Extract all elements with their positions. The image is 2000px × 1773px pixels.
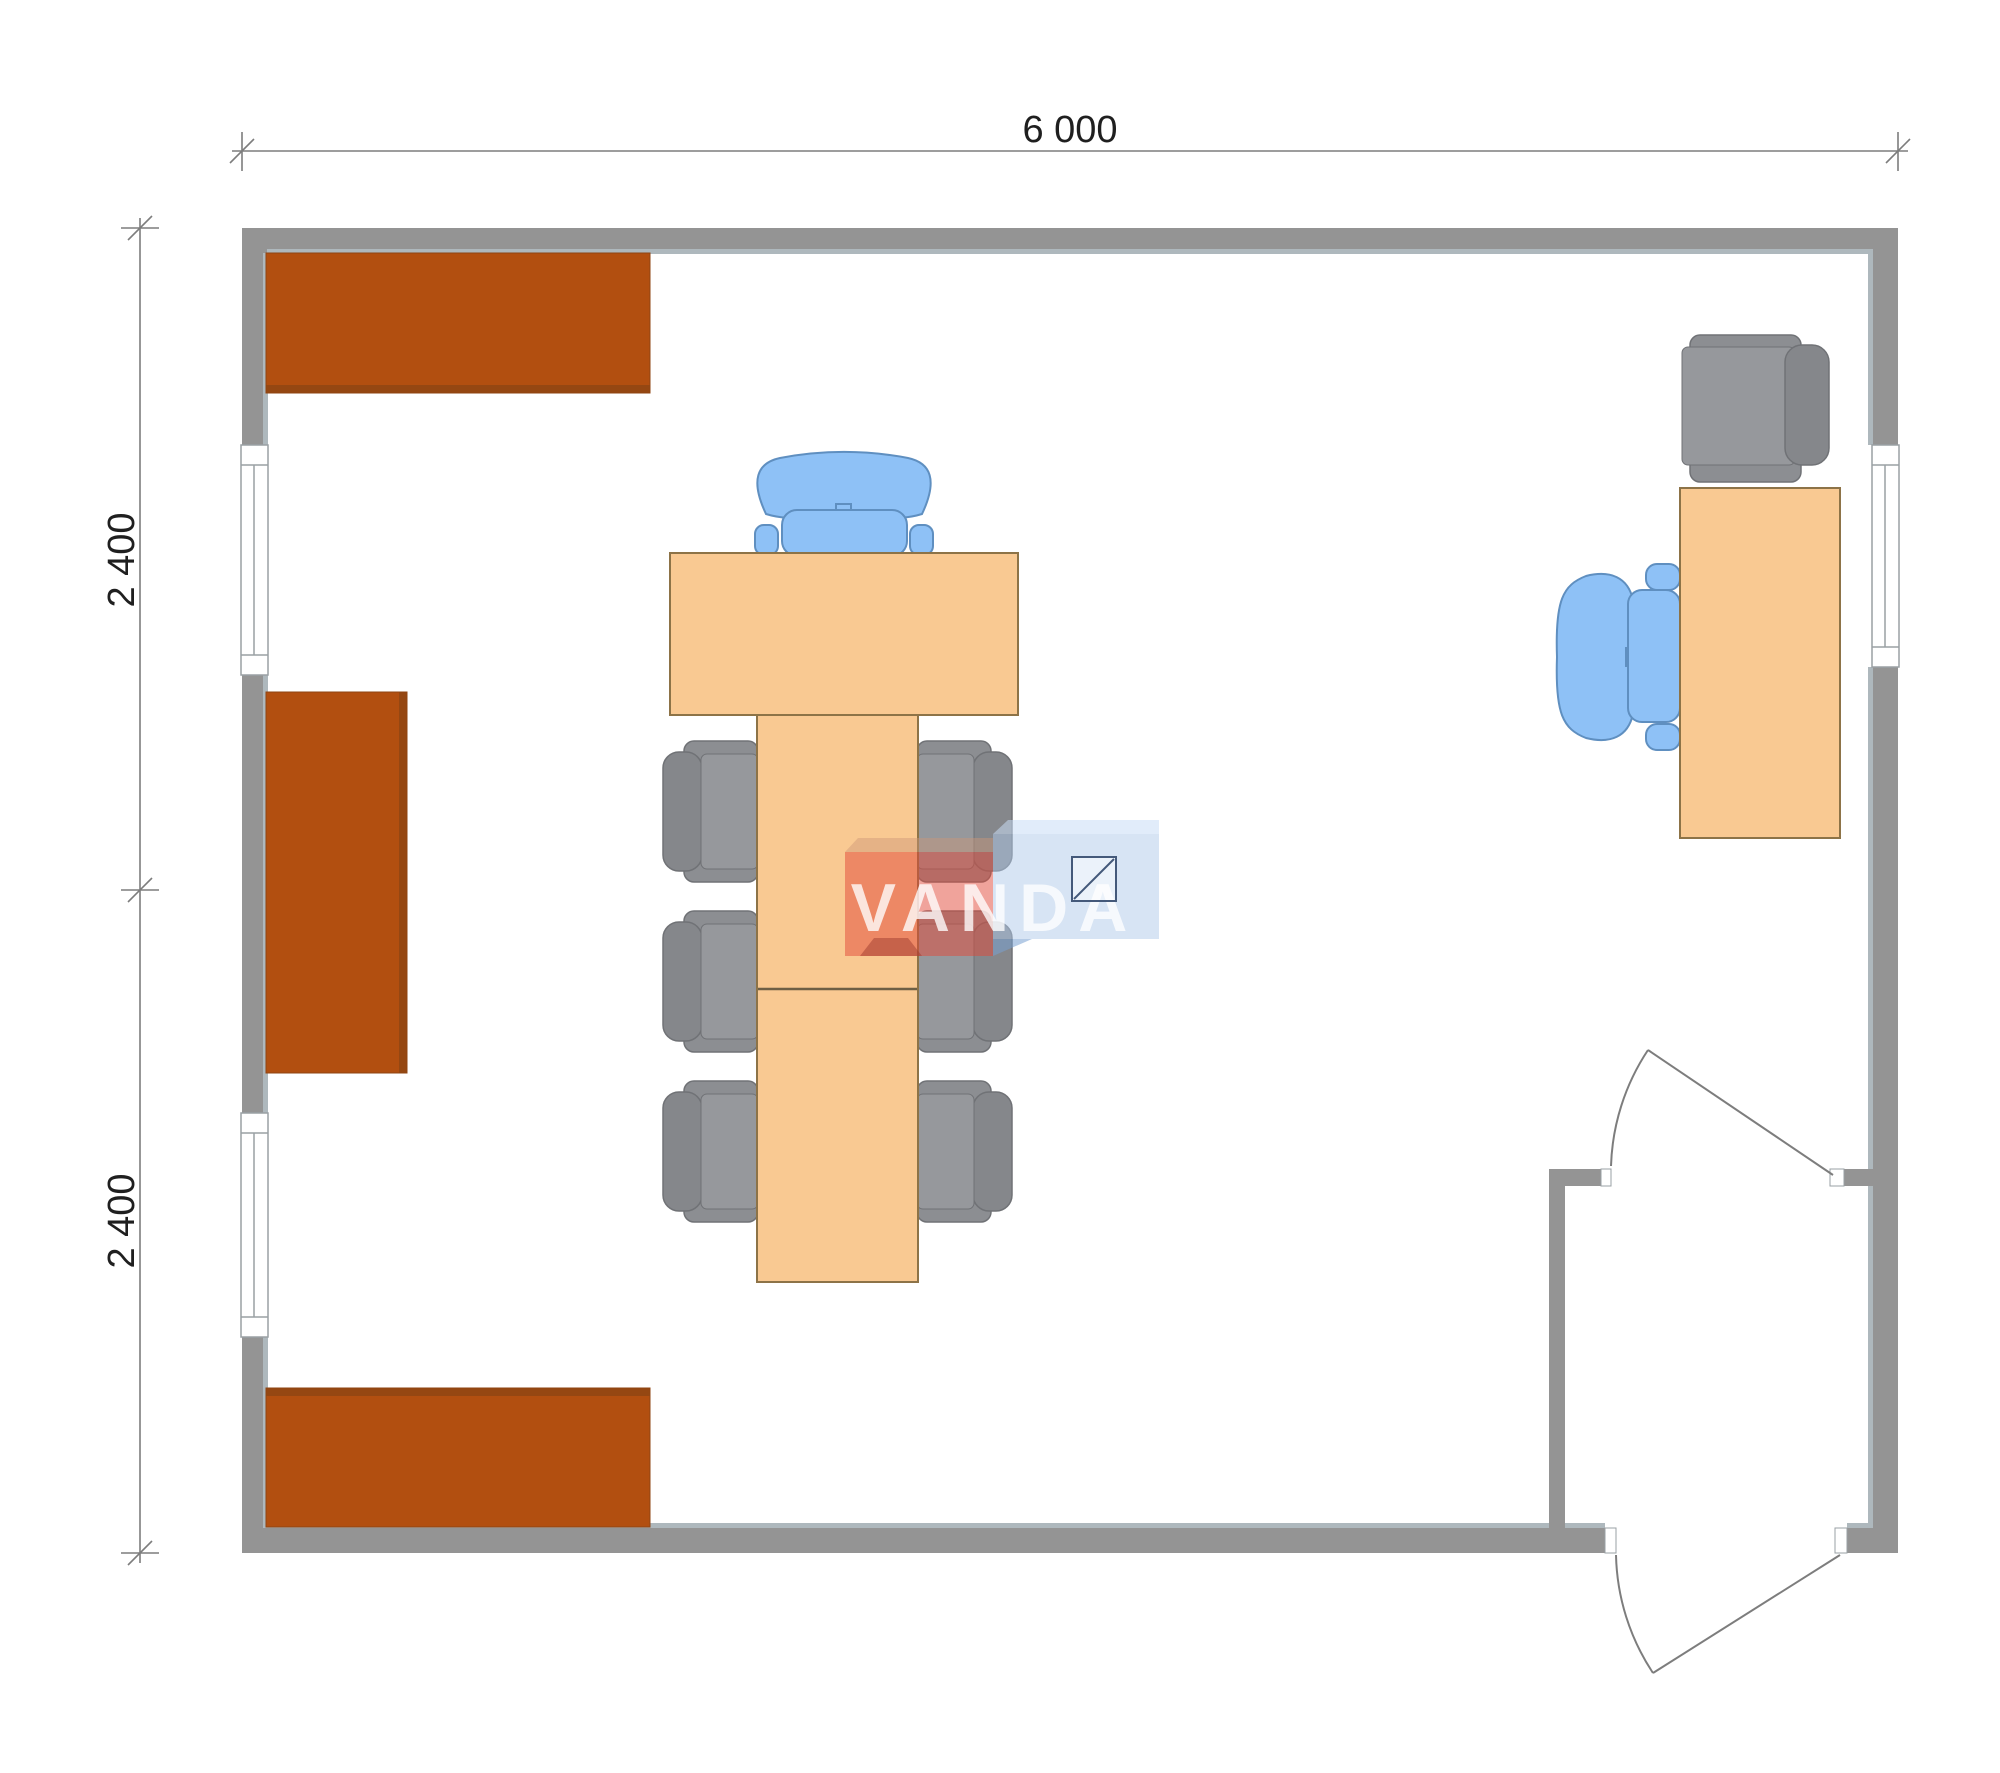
side-chair <box>1682 335 1829 482</box>
door-swing-arc <box>1611 1050 1648 1166</box>
window-left-lower <box>241 1113 268 1337</box>
storage-cabinet-left <box>266 692 407 1073</box>
door-swing-arc <box>1616 1555 1653 1673</box>
floor-plan-drawing: 6 000 2 400 2 400 <box>0 0 2000 1773</box>
floor-plan-page: 6 000 2 400 2 400 <box>0 0 2000 1773</box>
storage-cabinet-top <box>266 253 650 393</box>
storage-cabinet-bottom <box>266 1388 650 1527</box>
door-leaf <box>1648 1050 1833 1175</box>
meeting-chair <box>663 741 758 882</box>
meeting-chair <box>663 911 758 1052</box>
watermark: VANDA <box>845 820 1159 956</box>
dimension-left: 2 400 2 400 <box>101 216 159 1565</box>
dimension-label-height-lower: 2 400 <box>101 1173 143 1268</box>
square-diagonal-icon <box>1072 857 1116 901</box>
interior-door <box>1601 1050 1844 1187</box>
dimension-label-width: 6 000 <box>1022 109 1117 151</box>
entrance-door <box>1605 1528 1847 1673</box>
meeting-table-top <box>670 553 1018 715</box>
meeting-chair <box>917 1081 1012 1222</box>
window-left-upper <box>241 445 268 675</box>
executive-chair <box>755 452 933 556</box>
door-leaf <box>1653 1555 1840 1673</box>
desk-chair <box>1557 564 1680 750</box>
interior-partition-walls <box>1549 1169 1873 1528</box>
dimension-top: 6 000 <box>230 109 1910 171</box>
meeting-chair <box>663 1081 758 1222</box>
desk <box>1680 488 1840 838</box>
window-right <box>1872 445 1899 667</box>
dimension-label-height-upper: 2 400 <box>101 512 143 607</box>
meeting-table-extension <box>757 715 918 1282</box>
